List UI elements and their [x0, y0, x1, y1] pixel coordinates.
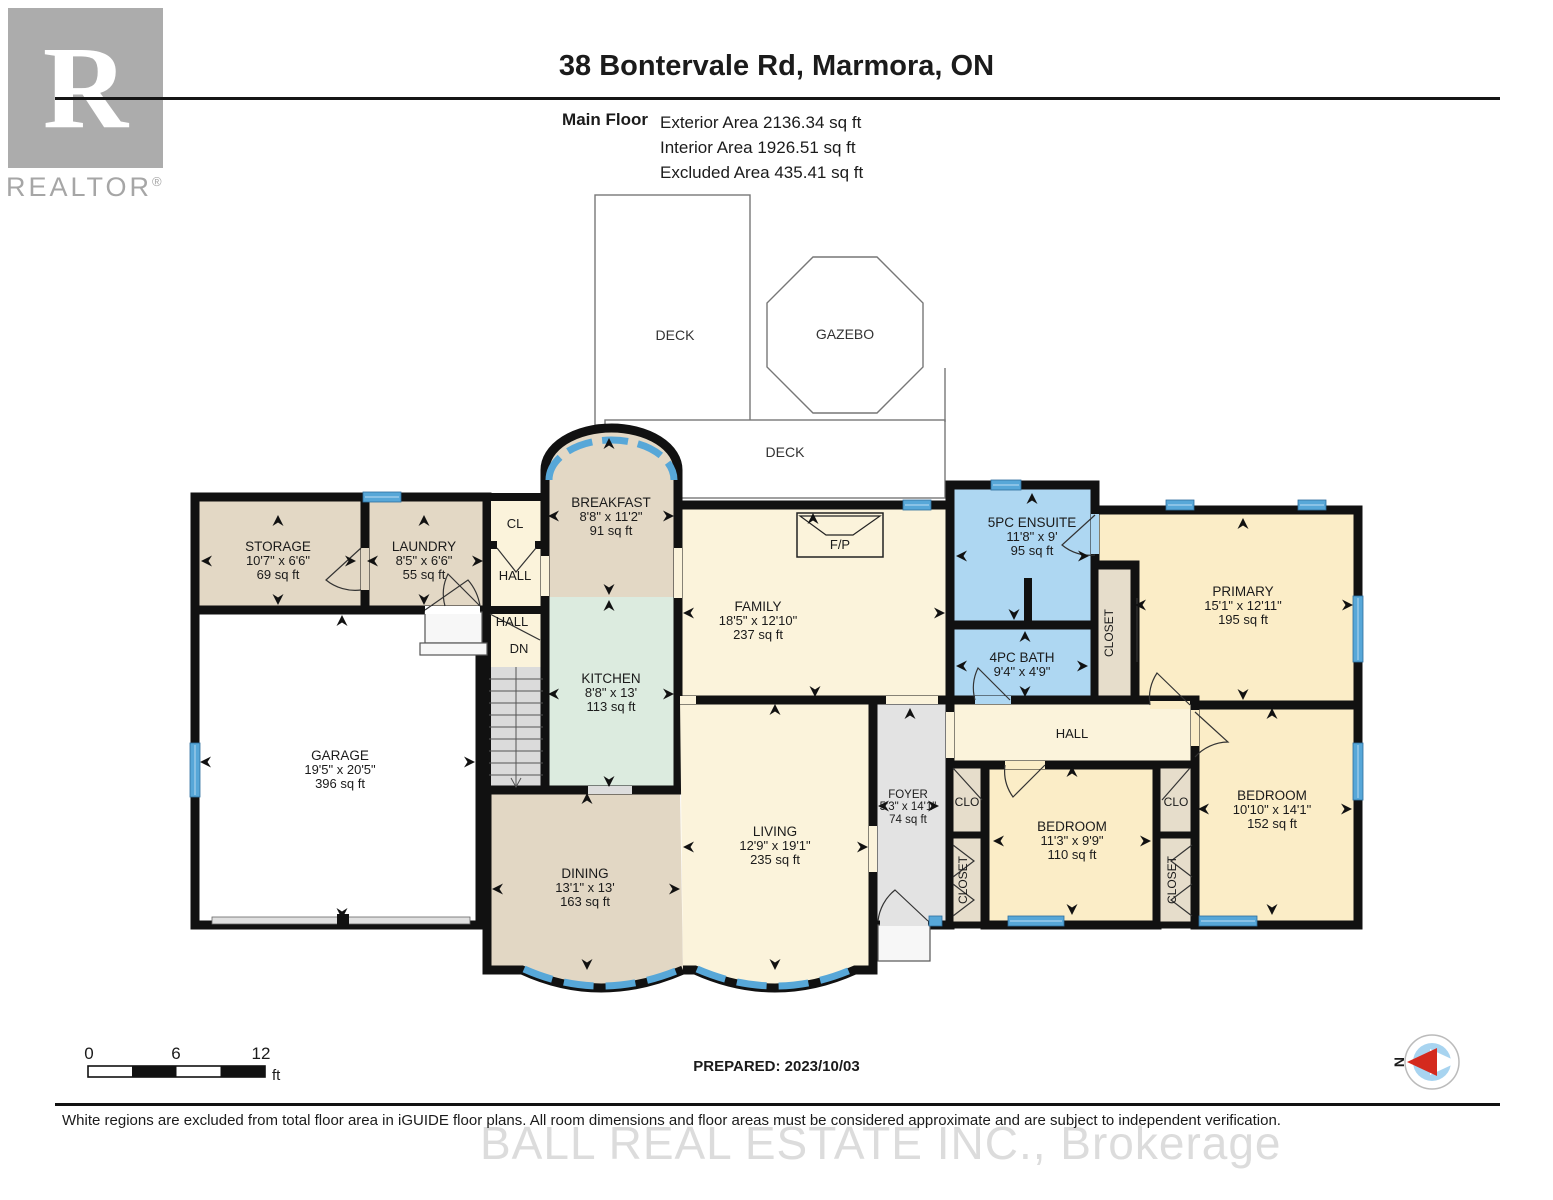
foyer-area: 74 sq ft — [889, 814, 928, 826]
closet-right-label: CLOSET — [1165, 855, 1179, 904]
garage-name: GARAGE — [311, 748, 369, 763]
garage-landing-step1 — [425, 612, 482, 643]
bedroom-mid-name: BEDROOM — [1037, 819, 1107, 834]
laundry-dims: 8'5" x 6'6" — [396, 553, 453, 568]
bedroom-right-area: 152 sq ft — [1247, 816, 1297, 831]
opening-foyer-living — [869, 826, 877, 872]
kitchen-area: 113 sq ft — [587, 699, 636, 714]
closet-left-label: CLOSET — [956, 855, 970, 904]
dining-name: DINING — [561, 866, 608, 881]
opening-garage — [425, 606, 480, 614]
storage-name: STORAGE — [245, 539, 311, 554]
garage-landing-step2 — [420, 643, 487, 655]
opening-hall-bedroom-right — [1191, 710, 1199, 746]
family-dims: 18'5" x 12'10" — [719, 613, 798, 628]
opening-foyer-hall — [946, 712, 954, 758]
cl-label: CL — [507, 516, 524, 531]
storage-area: 69 sq ft — [257, 567, 300, 582]
family-area: 237 sq ft — [733, 627, 783, 642]
kitchen-name: KITCHEN — [581, 671, 640, 686]
hall-upper-label: HALL — [499, 568, 532, 583]
dining-dims: 13'1" x 13' — [555, 880, 614, 895]
breakfast-area: 91 sq ft — [590, 523, 633, 538]
laundry-area: 55 sq ft — [403, 567, 446, 582]
living-dims: 12'9" x 19'1" — [739, 838, 811, 853]
bedroom-right-dims: 10'10" x 14'1" — [1233, 802, 1312, 817]
disclaimer-text: White regions are excluded from total fl… — [62, 1112, 1281, 1129]
garage-area: 396 sq ft — [315, 776, 365, 791]
clo-right-label: CLO — [1164, 795, 1189, 809]
family-name: FAMILY — [734, 599, 781, 614]
garage-dims: 19'5" x 20'5" — [304, 762, 376, 777]
foyer-dims: 5'3" x 14'1" — [880, 801, 937, 813]
hall-lower-label: HALL — [496, 614, 529, 629]
kitchen-dims: 8'8" x 13' — [585, 685, 637, 700]
window — [929, 916, 942, 926]
opening-family-foyer — [886, 696, 938, 704]
entry-porch — [878, 925, 930, 961]
primary-name: PRIMARY — [1212, 584, 1273, 599]
ensuite-name: 5PC ENSUITE — [988, 515, 1077, 530]
breakfast-dims: 8'8" x 11'2" — [579, 509, 642, 524]
opening-cl — [497, 541, 535, 549]
opening-hall-bath — [975, 696, 1011, 704]
opening-hall-bedroom-mid — [1005, 761, 1045, 769]
opening-hall-primary — [1150, 701, 1190, 709]
bath-dims: 9'4" x 4'9" — [994, 664, 1051, 679]
ensuite-area: 95 sq ft — [1011, 543, 1054, 558]
prepared-date: PREPARED: 2023/10/03 — [0, 1058, 1553, 1075]
deck-upper-label: DECK — [656, 327, 696, 343]
opening-front-door — [880, 917, 928, 926]
opening-breakfast-family — [674, 548, 682, 598]
living-name: LIVING — [753, 824, 797, 839]
dn-label: DN — [510, 641, 529, 656]
bedroom-mid-area: 110 sq ft — [1048, 847, 1097, 862]
opening-kitchen-dining — [588, 786, 632, 794]
deck-lower-label: DECK — [766, 444, 806, 460]
ensuite-dims: 11'8" x 9' — [1006, 529, 1057, 544]
closet-ensuite-label: CLOSET — [1102, 608, 1116, 657]
opening-family-living — [680, 696, 696, 704]
ensuite-partition-stub — [1024, 578, 1032, 625]
primary-dims: 15'1" x 12'11" — [1204, 598, 1282, 613]
fireplace-label: F/P — [830, 537, 850, 552]
footer-divider — [55, 1103, 1500, 1106]
storage-dims: 10'7" x 6'6" — [246, 553, 310, 568]
foyer-name: FOYER — [888, 789, 928, 801]
opening-storage-laundry — [361, 548, 369, 590]
opening-primary-ensuite — [1091, 514, 1099, 554]
floor-plan-page: R REALTOR® 38 Bontervale Rd, Marmora, ON… — [0, 0, 1553, 1200]
deck-upper-outline — [595, 195, 750, 425]
primary-area: 195 sq ft — [1218, 612, 1268, 627]
bedroom-mid-dims: 11'3" x 9'9" — [1040, 833, 1103, 848]
bedroom-right-name: BEDROOM — [1237, 788, 1307, 803]
bath-name: 4PC BATH — [989, 650, 1054, 665]
opening-hall-breakfast — [541, 556, 549, 596]
floor-plan-svg: DECK GAZEBO DECK STORAGE 10'7" x 6'6" 69… — [0, 0, 1553, 1200]
breakfast-name: BREAKFAST — [571, 495, 651, 510]
dining-area: 163 sq ft — [560, 894, 610, 909]
laundry-name: LAUNDRY — [392, 539, 456, 554]
clo-left-label: CLO — [955, 795, 980, 809]
gazebo-label: GAZEBO — [816, 326, 874, 342]
hall-bedrooms-label: HALL — [1056, 726, 1089, 741]
living-area: 235 sq ft — [750, 852, 800, 867]
